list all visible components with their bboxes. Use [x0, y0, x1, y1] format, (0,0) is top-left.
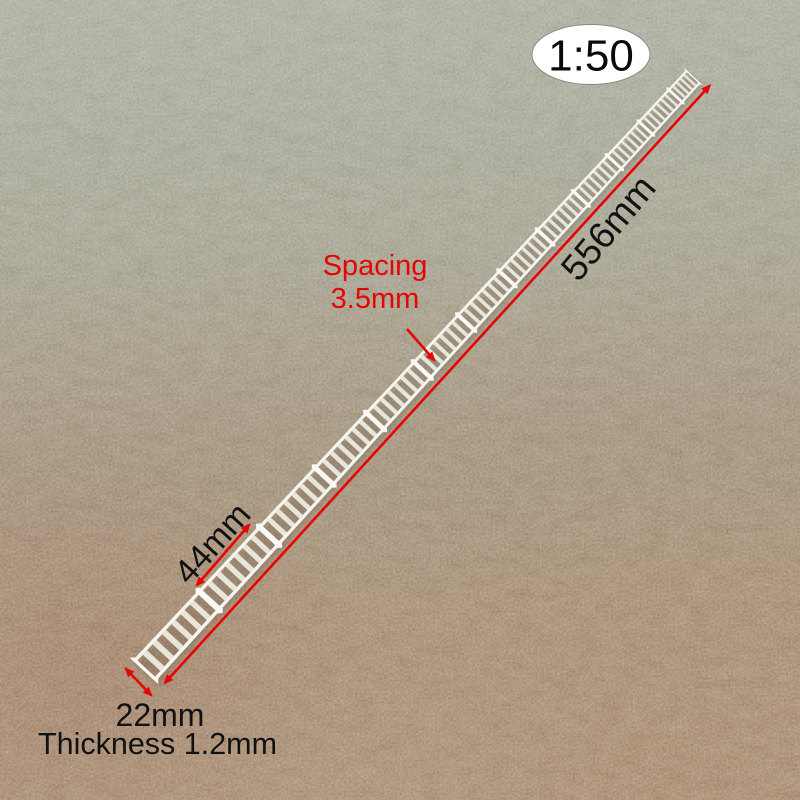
svg-text:1:50: 1:50: [548, 32, 634, 81]
